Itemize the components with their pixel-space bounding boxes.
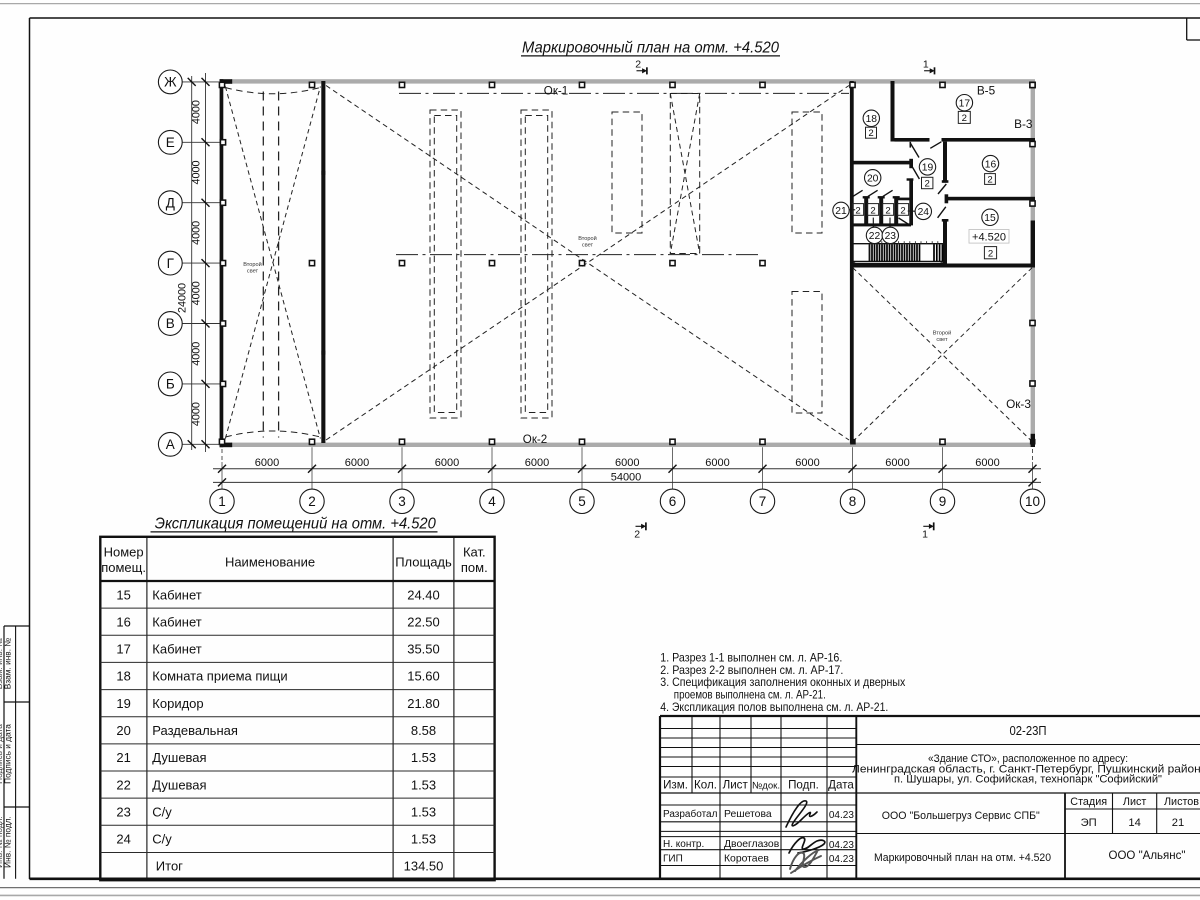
svg-text:Раздевальная: Раздевальная <box>152 723 238 738</box>
svg-text:2: 2 <box>870 205 875 216</box>
svg-text:21: 21 <box>1172 817 1184 829</box>
svg-text:2: 2 <box>885 205 890 216</box>
svg-text:6000: 6000 <box>885 457 909 469</box>
svg-text:Душевая: Душевая <box>152 750 206 765</box>
svg-text:Номер: Номер <box>104 545 144 560</box>
svg-text:2: 2 <box>635 58 641 70</box>
svg-text:помещ.: помещ. <box>101 560 146 575</box>
svg-text:24.40: 24.40 <box>407 587 440 602</box>
svg-text:Подп.: Подп. <box>788 779 819 792</box>
svg-text:1.53: 1.53 <box>411 777 436 792</box>
svg-text:Кабинет: Кабинет <box>152 587 201 602</box>
svg-text:2: 2 <box>987 175 992 186</box>
svg-text:Листов: Листов <box>1164 796 1199 808</box>
svg-text:Ок-2: Ок-2 <box>523 433 547 446</box>
svg-text:23: 23 <box>885 231 897 242</box>
svg-text:Подпись и дата: Подпись и дата <box>3 724 13 784</box>
svg-text:свет: свет <box>582 242 594 248</box>
svg-text:Двоеглазов: Двоеглазов <box>724 839 780 850</box>
svg-text:6000: 6000 <box>525 457 549 469</box>
svg-text:24000: 24000 <box>177 283 189 313</box>
svg-text:6000: 6000 <box>795 457 819 469</box>
svg-text:Инв. № подл.: Инв. № подл. <box>3 816 13 868</box>
svg-text:35.50: 35.50 <box>407 642 440 657</box>
svg-text:54000: 54000 <box>611 471 642 483</box>
svg-text:1: 1 <box>218 494 226 509</box>
svg-text:2: 2 <box>308 494 316 509</box>
svg-text:Решетова: Решетова <box>724 809 772 820</box>
svg-text:4000: 4000 <box>191 342 203 366</box>
svg-text:2: 2 <box>962 113 967 124</box>
svg-text:16: 16 <box>985 159 997 170</box>
svg-text:ЭП: ЭП <box>1081 817 1097 829</box>
svg-text:2: 2 <box>634 528 640 540</box>
svg-text:Изм.: Изм. <box>663 779 688 792</box>
svg-text:5: 5 <box>578 494 586 509</box>
svg-text:Ок-3: Ок-3 <box>1006 397 1031 411</box>
svg-text:ООО "Большегруз Сервис СПБ": ООО "Большегруз Сервис СПБ" <box>882 810 1040 822</box>
svg-text:Взам. инв. №: Взам. инв. № <box>3 638 13 690</box>
svg-text:4000: 4000 <box>191 100 203 124</box>
svg-text:Кабинет: Кабинет <box>152 642 201 657</box>
svg-text:21: 21 <box>835 206 847 217</box>
svg-text:№док.: №док. <box>752 780 780 791</box>
svg-text:Маркировочный план на отм. +4.: Маркировочный план на отм. +4.520 <box>522 40 779 57</box>
svg-text:1.53: 1.53 <box>411 750 436 765</box>
svg-text:4000: 4000 <box>191 221 203 245</box>
svg-text:Площадь: Площадь <box>395 555 452 570</box>
svg-text:6: 6 <box>669 494 677 509</box>
svg-text:2: 2 <box>900 205 905 216</box>
svg-text:С/у: С/у <box>152 804 172 819</box>
svg-text:Стадия: Стадия <box>1070 796 1107 808</box>
svg-text:18: 18 <box>116 669 130 684</box>
svg-text:4000: 4000 <box>191 160 203 184</box>
svg-text:6000: 6000 <box>615 457 639 469</box>
svg-text:6000: 6000 <box>705 457 729 469</box>
svg-text:3: 3 <box>398 494 406 509</box>
svg-text:Подпись и дата: Подпись и дата <box>0 724 4 784</box>
svg-text:Экспликация помещений на отм.: Экспликация помещений на отм. +4.520 <box>155 516 436 533</box>
svg-text:15: 15 <box>116 587 130 602</box>
svg-text:22: 22 <box>116 777 130 792</box>
svg-text:21: 21 <box>116 750 130 765</box>
svg-text:п. Шушары, ул. Софийская, техн: п. Шушары, ул. Софийская, технопарк "Соф… <box>894 773 1162 785</box>
svg-text:Душевая: Душевая <box>152 777 206 792</box>
svg-text:16: 16 <box>116 614 130 629</box>
svg-text:2: 2 <box>925 179 930 190</box>
svg-text:В: В <box>166 316 175 331</box>
svg-text:Коридор: Коридор <box>152 696 203 711</box>
svg-text:10: 10 <box>1025 494 1040 509</box>
svg-text:Второй: Второй <box>578 235 597 242</box>
svg-text:4. Экспликация полов выполнена: 4. Экспликация полов выполнена см. л. АР… <box>660 700 888 714</box>
svg-text:6000: 6000 <box>345 457 369 469</box>
svg-text:1.53: 1.53 <box>411 832 436 847</box>
svg-text:2: 2 <box>868 128 873 139</box>
svg-text:1: 1 <box>923 58 929 70</box>
svg-text:Е: Е <box>166 135 175 150</box>
svg-text:Итог: Итог <box>156 859 183 874</box>
svg-text:Взам. инв. №: Взам. инв. № <box>0 638 4 690</box>
svg-text:04.23: 04.23 <box>829 810 854 821</box>
svg-text:24: 24 <box>918 207 930 218</box>
svg-text:1.53: 1.53 <box>411 804 436 819</box>
svg-text:15: 15 <box>984 213 996 224</box>
svg-text:19: 19 <box>116 696 130 711</box>
svg-text:Д: Д <box>166 195 175 210</box>
svg-text:15.60: 15.60 <box>407 669 440 684</box>
svg-text:9: 9 <box>939 494 947 509</box>
svg-text:Коротаев: Коротаев <box>724 853 769 864</box>
svg-text:ООО "Альянс": ООО "Альянс" <box>1109 848 1186 862</box>
svg-text:Дата: Дата <box>828 779 854 792</box>
svg-text:Наименование: Наименование <box>225 555 315 570</box>
svg-text:8.58: 8.58 <box>411 723 436 738</box>
svg-text:Ж: Ж <box>164 75 177 90</box>
svg-text:Б: Б <box>166 377 175 392</box>
svg-text:23: 23 <box>116 804 130 819</box>
svg-text:пом.: пом. <box>461 560 488 575</box>
svg-text:Н. контр.: Н. контр. <box>663 839 704 850</box>
svg-text:6000: 6000 <box>435 457 459 469</box>
svg-text:20: 20 <box>867 174 879 185</box>
svg-text:20: 20 <box>116 723 130 738</box>
svg-text:Кат.: Кат. <box>463 545 486 560</box>
svg-text:7: 7 <box>759 494 767 509</box>
svg-text:Комната приема пищи: Комната приема пищи <box>152 669 287 684</box>
svg-text:134.50: 134.50 <box>404 859 444 874</box>
svg-text:А: А <box>166 437 175 452</box>
svg-text:Маркировочный план на отм. +4.: Маркировочный план на отм. +4.520 <box>874 852 1051 864</box>
svg-text:17: 17 <box>959 98 971 109</box>
svg-text:22: 22 <box>869 231 881 242</box>
svg-text:Второй: Второй <box>933 330 952 337</box>
svg-text:В-5: В-5 <box>977 83 996 97</box>
svg-text:04.23: 04.23 <box>829 854 854 865</box>
svg-text:14: 14 <box>1128 817 1140 829</box>
svg-text:4000: 4000 <box>191 281 203 305</box>
svg-text:22.50: 22.50 <box>407 614 440 629</box>
svg-text:19: 19 <box>922 163 934 174</box>
svg-text:04.23: 04.23 <box>829 840 854 851</box>
svg-text:Лист: Лист <box>723 779 749 792</box>
svg-text:В-3: В-3 <box>1014 117 1033 131</box>
svg-text:4: 4 <box>488 494 496 509</box>
svg-text:свет: свет <box>936 337 948 343</box>
svg-text:Г: Г <box>167 256 175 271</box>
svg-text:С/у: С/у <box>152 832 172 847</box>
svg-text:6000: 6000 <box>975 457 999 469</box>
svg-text:+4.520: +4.520 <box>972 231 1006 243</box>
svg-text:свет: свет <box>247 268 259 274</box>
svg-text:Ок-1: Ок-1 <box>544 84 568 97</box>
svg-text:17: 17 <box>116 642 130 657</box>
svg-text:Кабинет: Кабинет <box>152 614 201 629</box>
svg-text:8: 8 <box>849 494 857 509</box>
svg-text:24: 24 <box>116 832 130 847</box>
svg-text:ГИП: ГИП <box>663 853 683 864</box>
svg-text:2: 2 <box>855 205 860 216</box>
svg-text:Инв. № подл.: Инв. № подл. <box>0 816 4 868</box>
svg-text:21.80: 21.80 <box>407 696 440 711</box>
svg-text:18: 18 <box>866 114 878 125</box>
svg-text:1: 1 <box>922 528 928 540</box>
svg-text:Лист: Лист <box>1123 796 1147 808</box>
svg-text:6000: 6000 <box>255 457 279 469</box>
svg-text:02-23П: 02-23П <box>1010 724 1047 738</box>
svg-text:Кол.: Кол. <box>694 779 717 792</box>
svg-text:Второй: Второй <box>243 261 262 268</box>
svg-text:Разработал: Разработал <box>663 808 718 820</box>
svg-text:4000: 4000 <box>191 402 203 426</box>
svg-text:2: 2 <box>988 248 993 259</box>
